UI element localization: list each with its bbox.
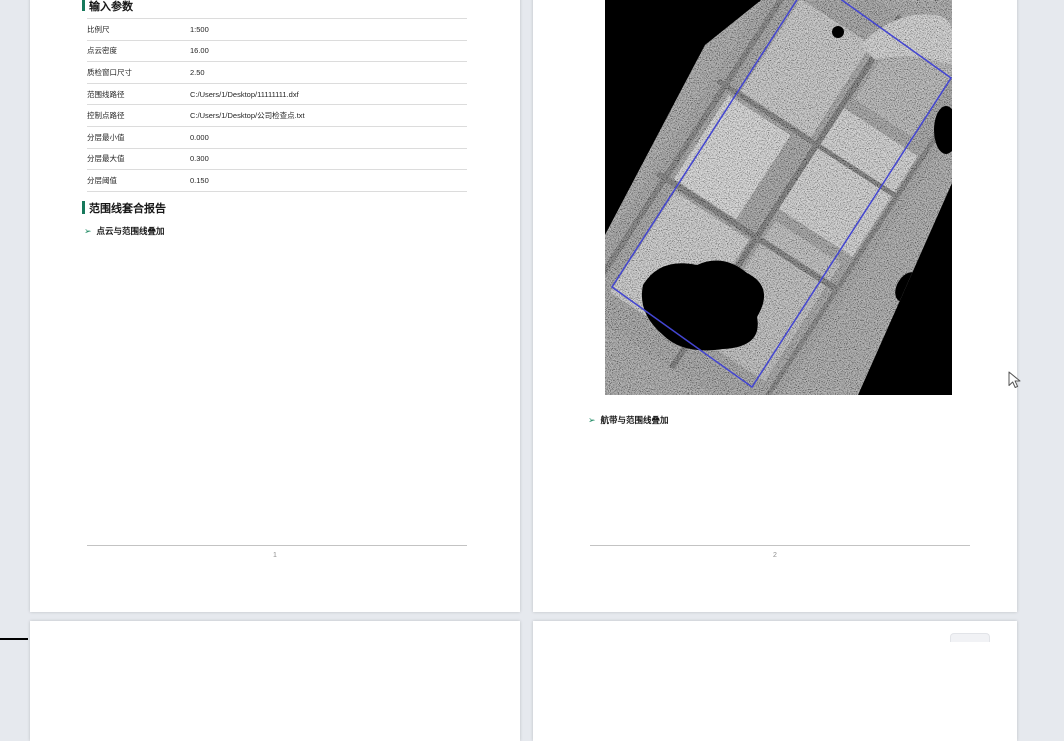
page-number: 2: [533, 552, 1017, 559]
table-row: 分层最大值 0.300: [87, 149, 467, 171]
arrow-bullet-icon: ➢: [84, 227, 92, 236]
footer-divider: [87, 545, 467, 547]
param-label: 分层最小值: [87, 132, 190, 143]
input-params-table: 比例尺 1:500 点云密度 16.00 质检窗口尺寸 2.50 范围线路径 C…: [87, 18, 467, 192]
bullet-pointcloud-overlay: ➢ 点云与范围线叠加: [84, 225, 165, 237]
report-page-3: [30, 621, 520, 741]
bullet-flightstrip-overlay: ➢ 航带与范围线叠加: [588, 414, 669, 426]
param-value: 16.00: [190, 46, 467, 55]
point-cloud-figure: [605, 0, 952, 395]
param-value: 0.150: [190, 176, 467, 185]
table-row: 范围线路径 C:/Users/1/Desktop/11111111.dxf: [87, 84, 467, 106]
param-value: 1:500: [190, 25, 467, 34]
param-label: 范围线路径: [87, 89, 190, 100]
report-page-2: ➢ 航带与范围线叠加 2: [533, 0, 1017, 612]
section-accent-bar: [82, 0, 85, 11]
param-value: 2.50: [190, 68, 467, 77]
footer-divider: [590, 545, 970, 547]
page-number: 1: [30, 552, 520, 559]
point-cloud-image: [605, 0, 952, 395]
param-value: C:/Users/1/Desktop/11111111.dxf: [190, 90, 467, 99]
param-label: 比例尺: [87, 24, 190, 35]
mouse-cursor-icon: [1008, 371, 1021, 394]
section-title-input-params: 输入参数: [89, 0, 133, 14]
param-label: 质检窗口尺寸: [87, 67, 190, 78]
param-label: 分层最大值: [87, 153, 190, 164]
param-value: C:/Users/1/Desktop/公司检查点.txt: [190, 110, 467, 121]
table-row: 质检窗口尺寸 2.50: [87, 62, 467, 84]
section-title-range-report: 范围线套合报告: [89, 200, 166, 216]
bottom-edge-chip: [950, 633, 990, 642]
bullet-label: 航带与范围线叠加: [601, 414, 669, 426]
table-row: 分层阈值 0.150: [87, 170, 467, 192]
report-page-4: [533, 621, 1017, 741]
bullet-label: 点云与范围线叠加: [97, 225, 165, 237]
param-value: 0.000: [190, 133, 467, 142]
document-viewer[interactable]: 输入参数 比例尺 1:500 点云密度 16.00 质检窗口尺寸 2.50 范围…: [0, 0, 1064, 640]
table-row: 控制点路径 C:/Users/1/Desktop/公司检查点.txt: [87, 105, 467, 127]
section-accent-bar: [82, 201, 85, 214]
table-row: 点云密度 16.00: [87, 41, 467, 63]
param-label: 点云密度: [87, 45, 190, 56]
report-page-1: 输入参数 比例尺 1:500 点云密度 16.00 质检窗口尺寸 2.50 范围…: [30, 0, 520, 612]
arrow-bullet-icon: ➢: [588, 416, 596, 425]
table-row: 分层最小值 0.000: [87, 127, 467, 149]
table-row: 比例尺 1:500: [87, 19, 467, 41]
param-label: 控制点路径: [87, 110, 190, 121]
param-label: 分层阈值: [87, 175, 190, 186]
param-value: 0.300: [190, 154, 467, 163]
